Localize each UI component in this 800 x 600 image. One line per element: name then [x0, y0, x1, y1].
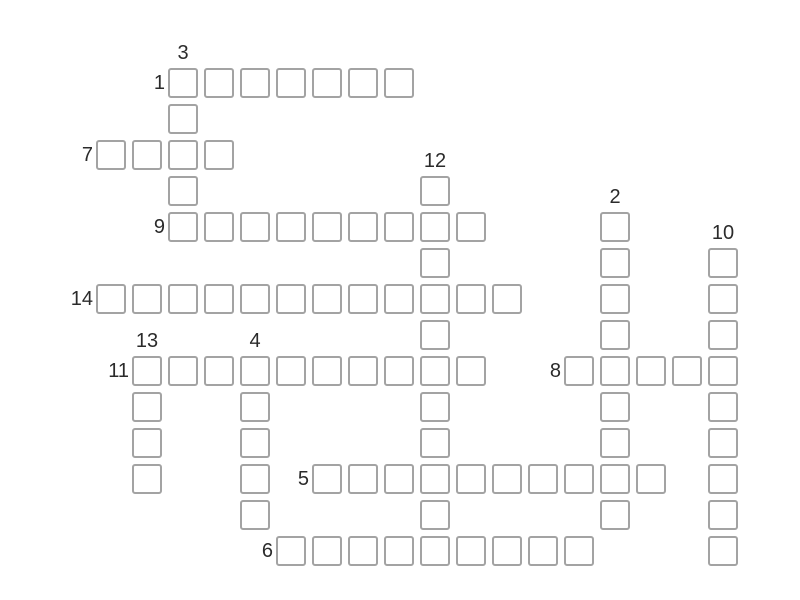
crossword-cell[interactable] — [492, 464, 522, 494]
crossword-cell[interactable] — [600, 212, 630, 242]
crossword-cell[interactable] — [240, 68, 270, 98]
crossword-cell[interactable] — [672, 356, 702, 386]
crossword-cell[interactable] — [348, 356, 378, 386]
crossword-cell[interactable] — [420, 176, 450, 206]
crossword-cell[interactable] — [132, 428, 162, 458]
crossword-cell[interactable] — [348, 284, 378, 314]
crossword-cell[interactable] — [132, 284, 162, 314]
crossword-cell[interactable] — [456, 356, 486, 386]
crossword-cell[interactable] — [600, 464, 630, 494]
clue-number-across: 11 — [69, 360, 129, 382]
crossword-cell[interactable] — [132, 140, 162, 170]
crossword-cell[interactable] — [600, 500, 630, 530]
crossword-cell[interactable] — [312, 356, 342, 386]
crossword-cell[interactable] — [420, 392, 450, 422]
crossword-cell[interactable] — [420, 284, 450, 314]
clue-number-across: 14 — [33, 288, 93, 310]
crossword-cell[interactable] — [204, 284, 234, 314]
crossword-cell[interactable] — [708, 392, 738, 422]
clue-number-across: 8 — [501, 360, 561, 382]
clue-number-down: 3 — [153, 42, 213, 64]
crossword-cell[interactable] — [600, 284, 630, 314]
crossword-cell[interactable] — [564, 464, 594, 494]
crossword-cell[interactable] — [276, 284, 306, 314]
clue-number-down: 2 — [585, 186, 645, 208]
crossword-cell[interactable] — [240, 392, 270, 422]
crossword-cell[interactable] — [384, 356, 414, 386]
crossword-cell[interactable] — [384, 284, 414, 314]
crossword-cell[interactable] — [312, 536, 342, 566]
clue-number-down: 12 — [405, 150, 465, 172]
crossword-cell[interactable] — [348, 464, 378, 494]
crossword-cell[interactable] — [384, 464, 414, 494]
crossword-cell[interactable] — [168, 140, 198, 170]
crossword-cell[interactable] — [240, 356, 270, 386]
crossword-cell[interactable] — [420, 212, 450, 242]
crossword-cell[interactable] — [132, 356, 162, 386]
crossword-cell[interactable] — [276, 68, 306, 98]
crossword-cell[interactable] — [600, 392, 630, 422]
crossword-cell[interactable] — [456, 536, 486, 566]
crossword-cell[interactable] — [708, 536, 738, 566]
crossword-cell[interactable] — [168, 68, 198, 98]
crossword-cell[interactable] — [204, 212, 234, 242]
crossword-cell[interactable] — [276, 536, 306, 566]
crossword-cell[interactable] — [96, 284, 126, 314]
crossword-cell[interactable] — [492, 284, 522, 314]
crossword-cell[interactable] — [420, 500, 450, 530]
clue-number-down: 10 — [693, 222, 753, 244]
crossword-cell[interactable] — [168, 356, 198, 386]
crossword-cell[interactable] — [600, 356, 630, 386]
crossword-cell[interactable] — [420, 464, 450, 494]
crossword-cell[interactable] — [600, 428, 630, 458]
crossword-cell[interactable] — [708, 428, 738, 458]
crossword-cell[interactable] — [420, 248, 450, 278]
crossword-cell[interactable] — [348, 536, 378, 566]
crossword-cell[interactable] — [420, 320, 450, 350]
crossword-cell[interactable] — [384, 68, 414, 98]
crossword-cell[interactable] — [204, 356, 234, 386]
crossword-cell[interactable] — [276, 356, 306, 386]
crossword-cell[interactable] — [348, 212, 378, 242]
crossword-cell[interactable] — [312, 212, 342, 242]
crossword-cell[interactable] — [384, 536, 414, 566]
crossword-cell[interactable] — [168, 104, 198, 134]
crossword-cell[interactable] — [168, 284, 198, 314]
crossword-cell[interactable] — [456, 212, 486, 242]
crossword-cell[interactable] — [204, 68, 234, 98]
crossword-cell[interactable] — [384, 212, 414, 242]
crossword-cell[interactable] — [312, 68, 342, 98]
crossword-cell[interactable] — [492, 536, 522, 566]
crossword-cell[interactable] — [420, 356, 450, 386]
crossword-cell[interactable] — [96, 140, 126, 170]
clue-number-down: 13 — [117, 330, 177, 352]
crossword-cell[interactable] — [168, 176, 198, 206]
crossword-cell[interactable] — [456, 284, 486, 314]
crossword-cell[interactable] — [708, 320, 738, 350]
crossword-cell[interactable] — [240, 500, 270, 530]
clue-number-across: 6 — [213, 540, 273, 562]
crossword-cell[interactable] — [456, 464, 486, 494]
crossword-cell[interactable] — [600, 248, 630, 278]
crossword-board: 1234567891011121314 — [0, 0, 800, 600]
crossword-cell[interactable] — [564, 536, 594, 566]
crossword-cell[interactable] — [528, 464, 558, 494]
crossword-cell[interactable] — [240, 428, 270, 458]
crossword-cell[interactable] — [348, 68, 378, 98]
crossword-cell[interactable] — [240, 212, 270, 242]
crossword-cell[interactable] — [636, 356, 666, 386]
clue-number-down: 4 — [225, 330, 285, 352]
crossword-cell[interactable] — [708, 500, 738, 530]
crossword-cell[interactable] — [708, 356, 738, 386]
crossword-cell[interactable] — [240, 284, 270, 314]
clue-number-across: 7 — [33, 144, 93, 166]
crossword-cell[interactable] — [312, 464, 342, 494]
crossword-cell[interactable] — [132, 464, 162, 494]
crossword-cell[interactable] — [636, 464, 666, 494]
clue-number-across: 5 — [249, 468, 309, 490]
clue-number-across: 1 — [105, 72, 165, 94]
crossword-cell[interactable] — [528, 536, 558, 566]
crossword-cell[interactable] — [132, 392, 162, 422]
crossword-cell[interactable] — [420, 428, 450, 458]
crossword-cell[interactable] — [312, 284, 342, 314]
clue-number-across: 9 — [105, 216, 165, 238]
crossword-cell[interactable] — [276, 212, 306, 242]
crossword-cell[interactable] — [204, 140, 234, 170]
crossword-cell[interactable] — [564, 356, 594, 386]
crossword-cell[interactable] — [600, 320, 630, 350]
crossword-cell[interactable] — [708, 464, 738, 494]
crossword-cell[interactable] — [708, 248, 738, 278]
crossword-cell[interactable] — [420, 536, 450, 566]
crossword-cell[interactable] — [168, 212, 198, 242]
crossword-cell[interactable] — [708, 284, 738, 314]
